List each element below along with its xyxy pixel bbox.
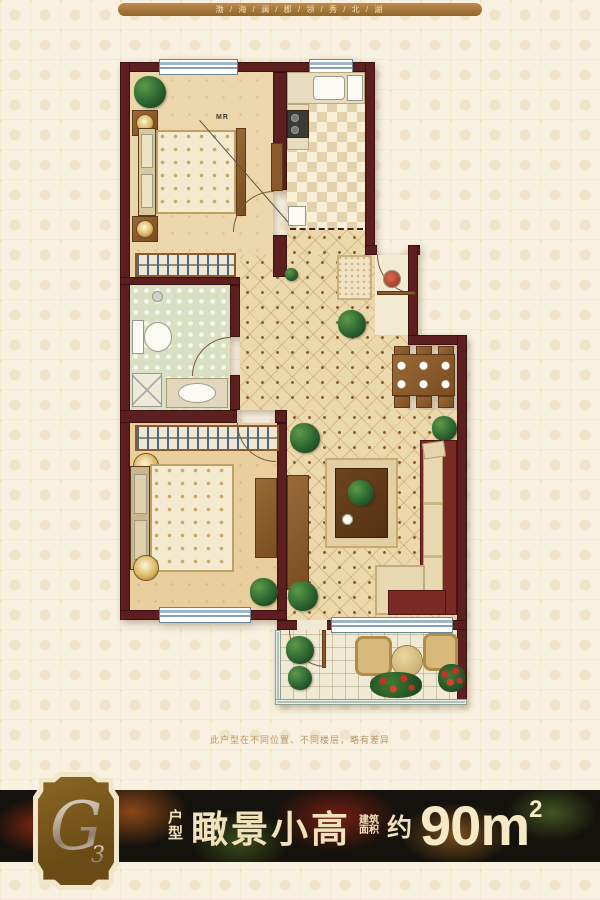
wall-bedroom2-top [275,410,287,423]
bedroom2-plant [250,578,278,606]
shower-tray [132,373,162,407]
bed1-mattress [156,130,236,214]
stove-burner [291,114,299,122]
balcony-plant [286,636,314,664]
tv-cabinet [287,475,309,590]
wall-bathroom-right [230,375,240,410]
bed1-pillow [141,174,153,208]
bathroom-sink [178,383,216,403]
bedroom1-window [160,60,237,74]
wall-kitchen-right [365,62,375,255]
wall-entry-top [365,245,377,255]
living-plant [290,423,320,453]
balcony-flower-box [370,672,422,698]
bedroom2-dresser [255,478,277,558]
balcony-sliding-door [332,618,452,632]
disclaimer-text: 此户型在不同位置、不同楼层，略有差异 [0,733,600,746]
sofa-cushions [423,448,443,608]
dining-chair [438,396,454,408]
bedroom1-wardrobe [135,253,236,277]
wall-left [120,62,130,620]
wall-bathroom-bottom [120,410,237,423]
balcony-armchair [355,636,392,676]
dining-table [392,354,455,396]
floor-plan: MR [120,58,472,708]
approx-label: 约 [387,808,412,844]
hall-floor [287,230,365,255]
bedroom2-lamp [134,556,158,580]
unit-title: 瞰景小高 [191,799,351,853]
shower-head [152,291,163,302]
kitchen-sink [313,76,345,100]
entry-door-leaf [377,291,415,295]
kitchen-appliance [288,206,306,226]
living-plant [288,581,318,611]
entry-door-ornament [383,270,401,288]
hall-plant [338,310,366,338]
area-prefix-line: 面积 [359,826,379,836]
bedroom1-plant [134,76,166,108]
unit-label-char: 型 [168,826,183,842]
area-number: 90m [420,794,529,857]
sofa-pillow [422,441,446,460]
project-name-ribbon: 渤 / 海 / 澜 / 郡 / 领 / 秀 / 北 / 湖 [118,3,482,16]
coffee-table-plate [342,514,353,525]
nightstand-lamp [137,221,153,237]
area-superscript: 2 [529,796,542,823]
unit-type-label: 户 型 [168,810,183,841]
balcony-door-opening [297,620,327,630]
bed2-pillow [134,520,147,560]
badge-number: 3 [91,843,105,868]
hall-plant-small [285,268,298,281]
unit-label-char: 户 [168,810,183,826]
bedroom1-door-leaf [271,143,283,191]
dining-chair [394,396,410,408]
wall-bathroom-right [230,285,240,337]
kitchen-opening-dashed [290,228,363,230]
sofa-ottoman [388,590,446,615]
balcony-plant [288,666,312,690]
bedroom2-window [160,608,250,622]
bed-label: MR [216,114,229,121]
bed2-mattress [150,464,234,572]
stove-burner [291,126,299,134]
kitchen-stove [287,110,309,138]
balcony-railing-bottom [275,699,467,705]
bed2-pillow [134,474,147,514]
toilet-tank [132,320,144,354]
dining-chair [416,396,432,408]
bed1-pillow [141,134,153,168]
balcony-flower-box [438,664,465,692]
wall-bathroom-top [120,277,240,285]
area-prefix: 建筑 面积 [359,816,379,837]
footer-text-row: 户 型 瞰景小高 建筑 面积 约 90m2 [168,790,542,862]
wall-right [457,335,467,705]
wall-bedroom2-right [277,423,287,620]
unit-badge: G 3 [33,772,119,890]
toilet-bowl [144,322,172,352]
kitchen-appliance [347,75,363,101]
balcony-railing-left [275,630,281,705]
area-value: 90m2 [420,798,542,854]
dining-plant [432,416,457,441]
entry-mat [337,255,372,300]
coffee-table-plant [348,480,374,506]
